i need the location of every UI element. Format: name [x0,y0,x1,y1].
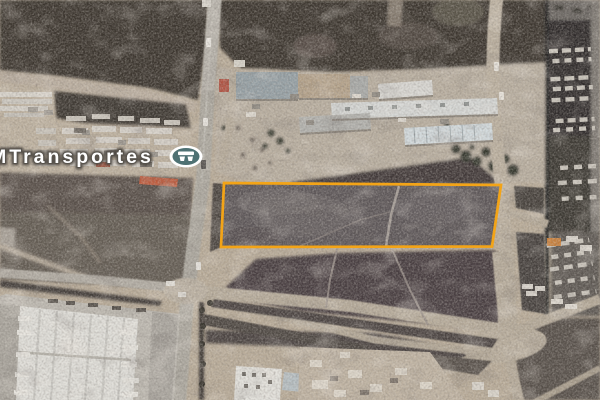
svg-text:MTransportes: MTransportes [0,146,154,168]
